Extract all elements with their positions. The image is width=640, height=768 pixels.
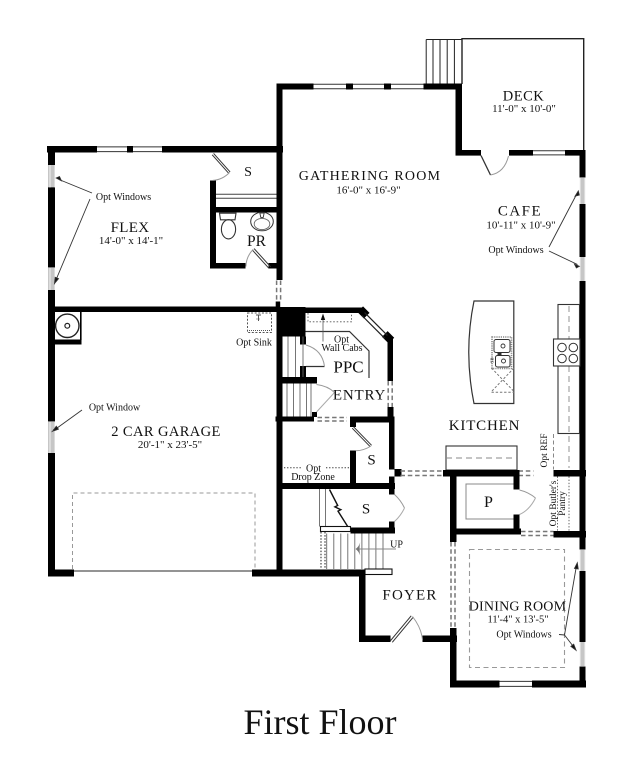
svg-text:Wall Cabs: Wall Cabs [321,343,362,354]
svg-text:11'-4" x 13'-5": 11'-4" x 13'-5" [488,615,549,626]
svg-text:SB: SB [490,357,495,363]
svg-text:Opt Sink: Opt Sink [236,338,272,349]
svg-text:Drop Zone: Drop Zone [291,472,335,483]
svg-text:KITCHEN: KITCHEN [449,418,520,434]
svg-text:S: S [367,453,375,469]
svg-text:Opt Windows: Opt Windows [488,245,543,256]
svg-text:20'-1" x 23'-5": 20'-1" x 23'-5" [138,439,202,451]
svg-text:PPC: PPC [333,358,363,377]
svg-text:Pantry: Pantry [558,491,568,516]
svg-text:GATHERING ROOM: GATHERING ROOM [299,169,441,184]
svg-text:S: S [362,502,370,518]
svg-text:16'-0" x 16'-9": 16'-0" x 16'-9" [336,185,400,197]
svg-text:S: S [244,165,252,180]
svg-text:2 CAR GARAGE: 2 CAR GARAGE [111,424,221,440]
svg-text:ENTRY: ENTRY [333,388,386,404]
svg-text:10'-11" x 10'-9": 10'-11" x 10'-9" [486,220,555,232]
svg-text:Opt Windows: Opt Windows [496,630,551,641]
svg-text:P: P [484,494,493,511]
svg-text:14'-0" x 14'-1": 14'-0" x 14'-1" [99,235,163,247]
svg-text:Opt REF: Opt REF [540,433,550,467]
svg-text:FLEX: FLEX [111,220,150,236]
svg-text:UP: UP [390,540,403,551]
svg-text:Opt Window: Opt Window [89,403,141,414]
svg-text:11'-0" x 10'-0": 11'-0" x 10'-0" [492,103,556,115]
svg-text:FOYER: FOYER [382,588,437,604]
svg-text:PR: PR [247,233,267,250]
svg-text:First Floor: First Floor [243,702,396,742]
svg-text:Opt Windows: Opt Windows [96,192,151,203]
svg-text:DINING ROOM: DINING ROOM [469,600,567,615]
svg-text:CAFE: CAFE [498,204,542,220]
